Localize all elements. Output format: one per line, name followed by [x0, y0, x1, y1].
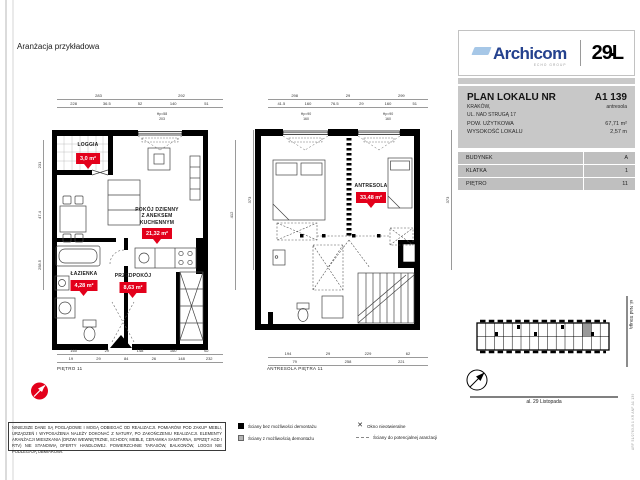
city-label: KRAKÓW,: [467, 104, 490, 112]
dimension-row: 412: [228, 140, 236, 290]
dimension-value: 221: [375, 359, 428, 364]
dimension-value: 79: [268, 359, 321, 364]
brand-logos: Archicom ECHO GROUP 29 L: [458, 30, 635, 76]
dimension-row: 194 29 229 62: [268, 350, 428, 358]
dimension-value: 228: [57, 101, 90, 106]
logo-divider: [580, 40, 581, 66]
dimension-value: 29: [308, 351, 348, 356]
row-label: KLATKA: [458, 168, 583, 174]
dimension-value: 47.4: [37, 190, 42, 240]
dimension-row: 283 292: [57, 92, 223, 100]
room-label-living: POKÓJ DZIENNY Z ANEKSEM KUCHENNYM: [134, 207, 180, 226]
dimension-row: 258.5 47.4 231: [36, 140, 44, 290]
unit-info-panel: PLAN LOKALU NR A1 139 KRAKÓW, antresola …: [458, 86, 635, 148]
dimension-value: 373: [247, 130, 252, 270]
legend-label: Okno nieotwieralne: [367, 424, 406, 429]
solid-wall-swatch-icon: [238, 423, 244, 429]
table-row: PIĘTRO 11: [458, 178, 635, 191]
dimension-value: 258: [321, 359, 374, 364]
dimension-row: 41.5 160 76.5 29 160 51: [268, 100, 428, 108]
dimension-value: 76.5: [321, 101, 348, 106]
legend-wall-optional: Ściany do potencjalnej aranżacji: [356, 435, 437, 440]
plan-caption-left: PIĘTRO 11: [57, 366, 82, 371]
sheet-annotation: Aranżacja przykładowa: [17, 42, 99, 51]
29l-letter: L: [612, 43, 623, 63]
dimension-value: 299: [375, 93, 428, 98]
room-label-bathroom: ŁAZIENKA: [62, 271, 106, 277]
unit-note: antresola: [606, 104, 627, 112]
dimension-value: 292: [140, 93, 223, 98]
legend-wall-removable: Ściany z możliwością demontażu: [238, 435, 314, 441]
floor-plan-sheet: Aranżacja przykładowa Archicom ECHO GROU…: [0, 0, 640, 480]
dashed-wall-icon: [356, 437, 369, 438]
dimension-row: 298 29 299: [268, 92, 428, 100]
dimension-value: 52: [123, 101, 156, 106]
dimension-value: 140: [157, 101, 190, 106]
dimension-value: 51: [190, 101, 223, 106]
archicom-subbrand: ECHO GROUP: [534, 63, 567, 67]
dimension-value: 51: [401, 101, 428, 106]
table-row: BUDYNEK A: [458, 152, 635, 165]
table-row: KLATKA 1: [458, 165, 635, 178]
disclaimer: NINIEJSZE DANE SĄ POGLĄDOWE I MOGĄ ODBIE…: [8, 422, 226, 451]
document-code: ARF 51/2763-B 1 KR ANF A1 139: [631, 388, 635, 450]
room-label-loggia: LOGGIA: [68, 142, 108, 148]
dimension-value: 160: [375, 101, 402, 106]
window-note: Hp=90 160: [383, 112, 393, 121]
row-value: 11: [583, 178, 635, 190]
dimension-value: 84: [112, 356, 140, 361]
dimension-value: 283: [57, 93, 140, 98]
room-label-hall: PRZEDPOKÓJ: [108, 273, 158, 279]
legend-window-fixed: ✕ Okno nieotwieralne: [356, 423, 406, 429]
dimension-row: 373: [444, 130, 452, 270]
legend-label: Ściany do potencjalnej aranżacji: [373, 435, 437, 440]
street-label-right: ul. Nad Strugą: [629, 300, 634, 370]
area-tag-loggia: 3,0 m²: [76, 153, 100, 164]
area-tag-living: 21,32 m²: [142, 228, 172, 239]
row-label: BUDYNEK: [458, 155, 583, 161]
area-tag-bathroom: 4,28 m²: [71, 280, 98, 291]
archicom-wordmark: Archicom: [493, 45, 567, 62]
window-note: Hp=90 160: [301, 112, 311, 121]
dimension-value: 160: [295, 101, 322, 106]
room-label-antresola: ANTRESOLA: [341, 183, 401, 189]
dimension-value: 298: [268, 93, 321, 98]
29l-logo: 29 L: [592, 43, 623, 63]
dimension-value: 36.5: [90, 101, 123, 106]
street-label: UL. NAD STRUGĄ 17: [467, 112, 627, 120]
dimension-value: 194: [268, 351, 308, 356]
plan-caption-right: ANTRESOLA PIĘTRA 11: [267, 366, 323, 371]
area-tag-antresola: 33,48 m²: [356, 192, 386, 203]
legend-label: Ściany bez możliwości demontażu: [248, 424, 317, 429]
archicom-flag-icon: [471, 47, 491, 55]
dimension-row: 79 258 221: [268, 358, 428, 366]
dimension-value: 412: [229, 140, 234, 290]
area-value: 67,71 m²: [605, 121, 627, 127]
highlighted-unit: [582, 324, 591, 336]
unit-number: A1 139: [595, 92, 627, 103]
area-tag-hall: 8,63 m²: [120, 282, 147, 293]
dimension-value: 373: [445, 130, 450, 270]
dimension-value: 41.5: [268, 101, 295, 106]
dimension-value: 26: [140, 356, 168, 361]
dimension-value: 258.5: [37, 240, 42, 290]
dimension-value: 160: [57, 348, 90, 353]
floor-plan-lower-level: [30, 88, 240, 388]
building-site-map: [468, 314, 624, 356]
removable-wall-swatch-icon: [238, 435, 244, 441]
dimension-row: 373: [246, 130, 254, 270]
fixed-window-x-icon: ✕: [356, 423, 364, 429]
header-divider-bar: [458, 78, 635, 84]
row-label: PIĘTRO: [458, 181, 583, 187]
dimension-value: 232: [195, 356, 223, 361]
dimension-row: 160 29 148 160 62: [57, 347, 223, 355]
dimension-value: 29: [85, 356, 113, 361]
legend-wall-solid: Ściany bez możliwości demontażu: [238, 423, 317, 429]
dimension-value: 148: [168, 356, 196, 361]
area-label: POW. UŻYTKOWA: [467, 121, 514, 127]
row-value: 1: [583, 165, 635, 177]
dimension-value: 29: [348, 101, 375, 106]
dimension-row: 228 36.5 52 140 51: [57, 100, 223, 108]
north-arrow-icon: [467, 370, 487, 390]
height-value: 2,57 m: [610, 129, 627, 135]
dimension-value: 148: [123, 348, 156, 353]
dimension-value: 231: [37, 140, 42, 190]
panel-title: PLAN LOKALU NR: [467, 92, 556, 103]
dimension-value: 19: [57, 356, 85, 361]
dimension-value: 29: [321, 93, 374, 98]
dimension-value: 62: [190, 348, 223, 353]
street-label-bottom: al. 29 Listopada: [470, 399, 618, 405]
row-value: A: [583, 152, 635, 164]
29l-digits: 29: [592, 43, 612, 63]
legend-label: Ściany z możliwością demontażu: [248, 436, 314, 441]
dimension-value: 29: [90, 348, 123, 353]
dimension-value: 62: [388, 351, 428, 356]
window-note: Hp=58 203: [157, 112, 167, 121]
unit-info-table: BUDYNEK A KLATKA 1 PIĘTRO 11: [458, 152, 635, 191]
dimension-row: 19 29 84 26 148 232: [57, 355, 223, 363]
archicom-logo: Archicom ECHO GROUP: [473, 45, 567, 62]
dimension-value: 229: [348, 351, 388, 356]
window: [138, 132, 182, 151]
height-label: WYSOKOŚĆ LOKALU: [467, 129, 523, 135]
dimension-value: 160: [157, 348, 190, 353]
